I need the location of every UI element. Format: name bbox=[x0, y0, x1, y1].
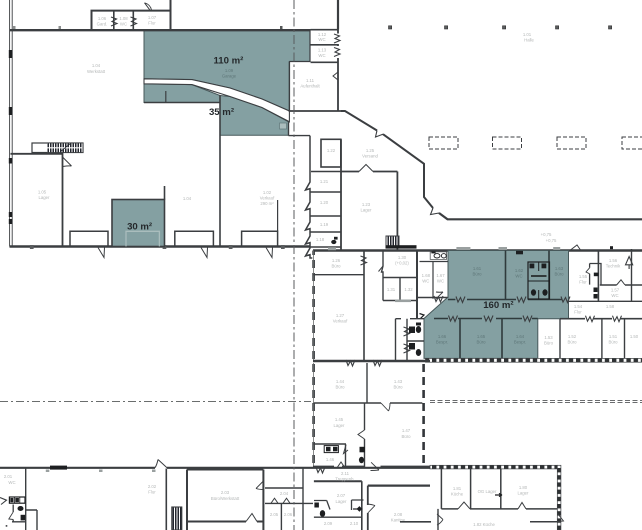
svg-text:Gard.: Gard. bbox=[97, 22, 108, 27]
svg-text:1.02: 1.02 bbox=[263, 190, 272, 195]
svg-text:1.53: 1.53 bbox=[544, 335, 553, 340]
svg-text:1.66: 1.66 bbox=[438, 334, 447, 339]
svg-text:1.80: 1.80 bbox=[519, 485, 528, 490]
svg-text:2.04: 2.04 bbox=[280, 491, 289, 496]
svg-text:2.03: 2.03 bbox=[221, 490, 230, 495]
svg-text:+0,75: +0,75 bbox=[546, 238, 557, 243]
svg-text:OG Lager: OG Lager bbox=[478, 489, 497, 494]
svg-text:1.25: 1.25 bbox=[366, 148, 375, 153]
svg-text:(+0,02): (+0,02) bbox=[395, 261, 409, 266]
svg-text:1.57: 1.57 bbox=[611, 288, 620, 293]
svg-text:Büro: Büro bbox=[335, 385, 345, 390]
svg-text:Flur: Flur bbox=[148, 21, 156, 26]
svg-text:35 m²: 35 m² bbox=[209, 107, 234, 118]
svg-text:Technik: Technik bbox=[606, 264, 621, 269]
svg-text:WC: WC bbox=[611, 293, 618, 298]
svg-text:1.44: 1.44 bbox=[336, 379, 345, 384]
svg-text:1.27: 1.27 bbox=[336, 313, 345, 318]
svg-text:Lager: Lager bbox=[336, 499, 348, 504]
svg-text:Büro: Büro bbox=[393, 385, 403, 390]
svg-text:1.04: 1.04 bbox=[183, 196, 192, 201]
svg-text:1.67: 1.67 bbox=[436, 273, 445, 278]
svg-text:1.26: 1.26 bbox=[332, 258, 341, 263]
svg-text:1.68: 1.68 bbox=[422, 273, 431, 278]
svg-text:1.55: 1.55 bbox=[579, 274, 588, 279]
svg-text:1.07: 1.07 bbox=[148, 15, 157, 20]
svg-text:Verkauf: Verkauf bbox=[333, 319, 348, 324]
svg-text:2.11: 2.11 bbox=[341, 471, 350, 476]
svg-text:Treppenh.: Treppenh. bbox=[335, 477, 354, 482]
svg-text:1.52: 1.52 bbox=[568, 334, 577, 339]
svg-text:1.43: 1.43 bbox=[394, 379, 403, 384]
svg-text:1.08: 1.08 bbox=[119, 16, 128, 21]
svg-text:1.22: 1.22 bbox=[327, 148, 336, 153]
svg-text:Lager: Lager bbox=[39, 195, 51, 200]
svg-text:1.81: 1.81 bbox=[453, 486, 462, 491]
svg-text:Verkauf: Verkauf bbox=[260, 196, 275, 201]
svg-text:290 m²: 290 m² bbox=[260, 201, 274, 206]
svg-text:Aufenthalt: Aufenthalt bbox=[300, 84, 320, 89]
svg-text:Büro: Büro bbox=[472, 272, 482, 277]
svg-text:1.23: 1.23 bbox=[362, 202, 371, 207]
svg-text:1.54: 1.54 bbox=[574, 304, 583, 309]
svg-text:Garage: Garage bbox=[222, 74, 237, 79]
svg-text:1.06: 1.06 bbox=[98, 16, 107, 21]
svg-text:1.18: 1.18 bbox=[316, 237, 325, 242]
svg-text:Flur: Flur bbox=[148, 490, 156, 495]
svg-text:1.04: 1.04 bbox=[92, 63, 101, 68]
svg-text:Lager: Lager bbox=[518, 491, 530, 496]
svg-text:1.19: 1.19 bbox=[320, 222, 329, 227]
svg-text:2.07: 2.07 bbox=[337, 493, 346, 498]
svg-text:2.01: 2.01 bbox=[4, 474, 13, 479]
svg-text:1.46: 1.46 bbox=[326, 457, 335, 462]
svg-text:1.21: 1.21 bbox=[320, 179, 329, 184]
svg-text:Versand: Versand bbox=[362, 154, 378, 159]
svg-text:Büro: Büro bbox=[608, 340, 618, 345]
svg-text:2.09: 2.09 bbox=[324, 521, 333, 526]
svg-text:2.06: 2.06 bbox=[284, 512, 293, 517]
svg-text:1.64: 1.64 bbox=[516, 334, 525, 339]
svg-text:WC: WC bbox=[437, 279, 444, 284]
svg-text:1.47: 1.47 bbox=[402, 428, 411, 433]
svg-text:Büro: Büro bbox=[554, 272, 564, 277]
svg-text:2.08: 2.08 bbox=[394, 512, 403, 517]
svg-text:110 m²: 110 m² bbox=[213, 56, 243, 67]
svg-text:WC: WC bbox=[318, 37, 325, 42]
svg-text:Lager: Lager bbox=[334, 423, 346, 428]
svg-text:2.05: 2.05 bbox=[270, 512, 279, 517]
svg-text:1.50: 1.50 bbox=[630, 334, 639, 339]
svg-text:160 m²: 160 m² bbox=[483, 300, 513, 311]
svg-text:Küche: Küche bbox=[451, 492, 464, 497]
svg-text:Büro: Büro bbox=[476, 340, 486, 345]
svg-text:Bespr.: Bespr. bbox=[514, 340, 526, 345]
svg-text:Bespr.: Bespr. bbox=[436, 340, 448, 345]
svg-text:1.56: 1.56 bbox=[609, 258, 618, 263]
svg-text:Halle: Halle bbox=[524, 38, 534, 43]
svg-text:2.10: 2.10 bbox=[350, 521, 359, 526]
svg-text:1.31: 1.31 bbox=[387, 287, 396, 292]
svg-text:WC: WC bbox=[318, 53, 325, 58]
svg-text:Büro: Büro bbox=[331, 264, 341, 269]
svg-text:1.30: 1.30 bbox=[398, 255, 407, 260]
svg-text:Büro: Büro bbox=[401, 434, 411, 439]
svg-text:+0,75: +0,75 bbox=[541, 232, 552, 237]
svg-text:1.51: 1.51 bbox=[609, 334, 618, 339]
svg-text:30 m²: 30 m² bbox=[127, 222, 152, 233]
svg-text:Werkstatt: Werkstatt bbox=[87, 69, 106, 74]
svg-text:1.01: 1.01 bbox=[523, 32, 532, 37]
svg-text:Büro: Büro bbox=[567, 340, 577, 345]
svg-text:Büro/Werkstatt: Büro/Werkstatt bbox=[211, 496, 240, 501]
svg-text:Büro: Büro bbox=[544, 341, 554, 346]
svg-text:1.32: 1.32 bbox=[404, 287, 413, 292]
svg-text:1.62: 1.62 bbox=[515, 268, 524, 273]
svg-text:WC: WC bbox=[8, 480, 15, 485]
svg-text:1.45: 1.45 bbox=[335, 417, 344, 422]
svg-text:2.02: 2.02 bbox=[148, 484, 157, 489]
svg-text:1.09: 1.09 bbox=[225, 68, 234, 73]
svg-text:WC: WC bbox=[422, 279, 429, 284]
svg-text:Flur: Flur bbox=[574, 310, 582, 315]
svg-text:1.11: 1.11 bbox=[306, 78, 315, 83]
svg-text:Flur: Flur bbox=[579, 280, 587, 285]
svg-text:1.65: 1.65 bbox=[477, 334, 486, 339]
svg-text:1.63: 1.63 bbox=[555, 266, 564, 271]
svg-text:WC: WC bbox=[515, 274, 522, 279]
svg-text:1.82 Küche: 1.82 Küche bbox=[473, 522, 495, 527]
svg-text:1.20: 1.20 bbox=[320, 200, 329, 205]
svg-text:Lager: Lager bbox=[361, 208, 373, 213]
svg-text:1.13: 1.13 bbox=[318, 48, 327, 53]
svg-text:WC: WC bbox=[120, 22, 127, 27]
svg-text:1.61: 1.61 bbox=[473, 266, 482, 271]
svg-text:1.58: 1.58 bbox=[606, 304, 615, 309]
svg-text:1.05: 1.05 bbox=[38, 190, 47, 195]
